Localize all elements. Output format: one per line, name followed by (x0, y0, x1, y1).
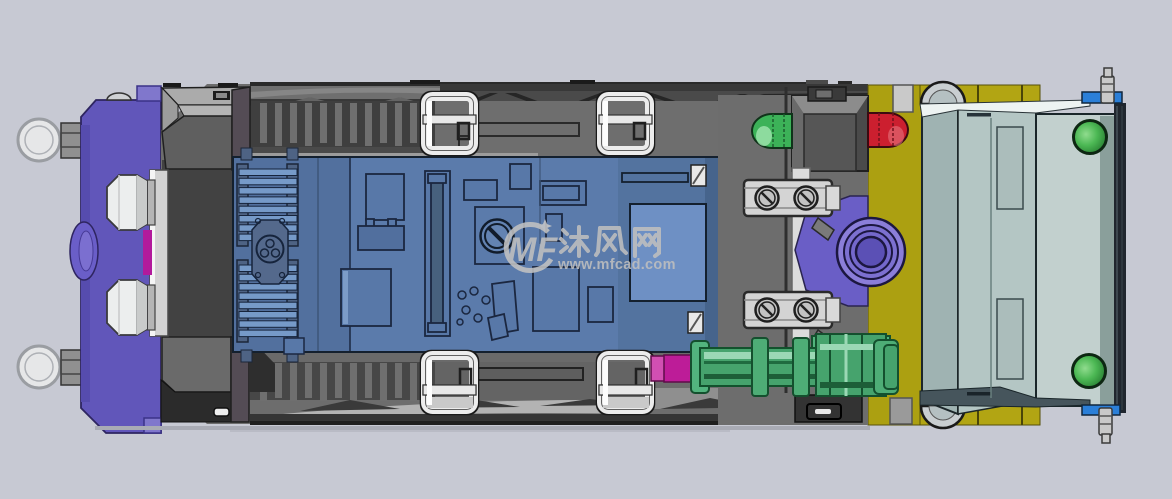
svg-text:www.mfcad.com: www.mfcad.com (557, 257, 676, 273)
svg-text:MF: MF (508, 231, 558, 269)
